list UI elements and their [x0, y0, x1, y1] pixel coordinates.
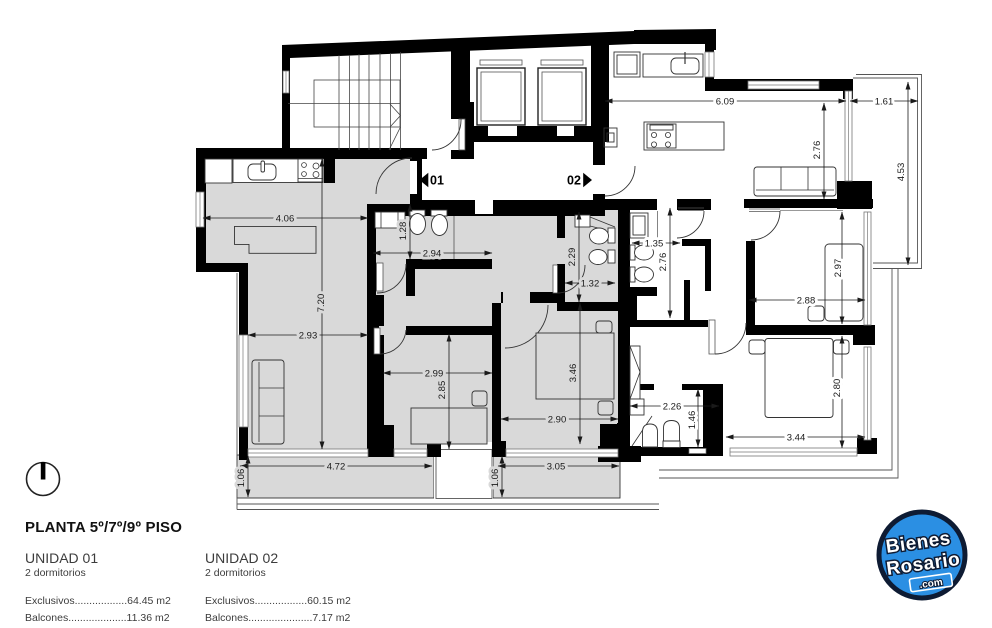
svg-text:7.20: 7.20 — [316, 294, 327, 313]
svg-text:2 dormitorios: 2 dormitorios — [205, 567, 266, 579]
svg-text:1.35: 1.35 — [645, 239, 664, 250]
svg-text:3.05: 3.05 — [547, 462, 566, 473]
svg-text:2.85: 2.85 — [437, 381, 448, 400]
svg-text:2.80: 2.80 — [832, 379, 843, 398]
svg-text:1.06: 1.06 — [490, 469, 501, 488]
svg-text:4.72: 4.72 — [327, 462, 346, 473]
svg-text:2.76: 2.76 — [658, 253, 669, 272]
svg-text:2.99: 2.99 — [425, 369, 444, 380]
svg-text:2 dormitorios: 2 dormitorios — [25, 567, 86, 579]
svg-text:2.93: 2.93 — [299, 331, 318, 342]
svg-text:1.32: 1.32 — [581, 279, 600, 290]
svg-text:2.90: 2.90 — [548, 415, 567, 426]
svg-text:2.29: 2.29 — [567, 248, 578, 267]
svg-text:UNIDAD 01: UNIDAD 01 — [25, 550, 98, 566]
svg-text:4.53: 4.53 — [896, 163, 907, 182]
svg-text:Exclusivos..................64: Exclusivos..................64.45 m2 — [25, 595, 171, 607]
svg-text:UNIDAD 02: UNIDAD 02 — [205, 550, 278, 566]
svg-text:6.09: 6.09 — [716, 97, 735, 108]
svg-text:Exclusivos..................60: Exclusivos..................60.15 m2 — [205, 595, 351, 607]
svg-text:1.28: 1.28 — [398, 222, 409, 241]
svg-text:1.46: 1.46 — [687, 411, 698, 430]
svg-text:4.06: 4.06 — [276, 214, 295, 225]
svg-text:1.61: 1.61 — [875, 97, 894, 108]
svg-text:3.44: 3.44 — [787, 433, 806, 444]
svg-text:2.76: 2.76 — [812, 141, 823, 160]
svg-text:01: 01 — [430, 174, 444, 188]
svg-text:2.97: 2.97 — [833, 259, 844, 278]
svg-text:2.88: 2.88 — [797, 296, 816, 307]
svg-text:Balcones......................: Balcones......................7.17 m2 — [205, 612, 350, 624]
svg-text:1.06: 1.06 — [236, 469, 247, 488]
svg-text:2.94: 2.94 — [423, 249, 442, 260]
svg-text:Balcones....................11: Balcones....................11.36 m2 — [25, 612, 170, 624]
svg-text:PLANTA 5º/7º/9º PISO: PLANTA 5º/7º/9º PISO — [25, 519, 182, 536]
svg-text:2.26: 2.26 — [663, 402, 682, 413]
svg-text:02: 02 — [567, 174, 581, 188]
svg-text:3.46: 3.46 — [568, 364, 579, 383]
